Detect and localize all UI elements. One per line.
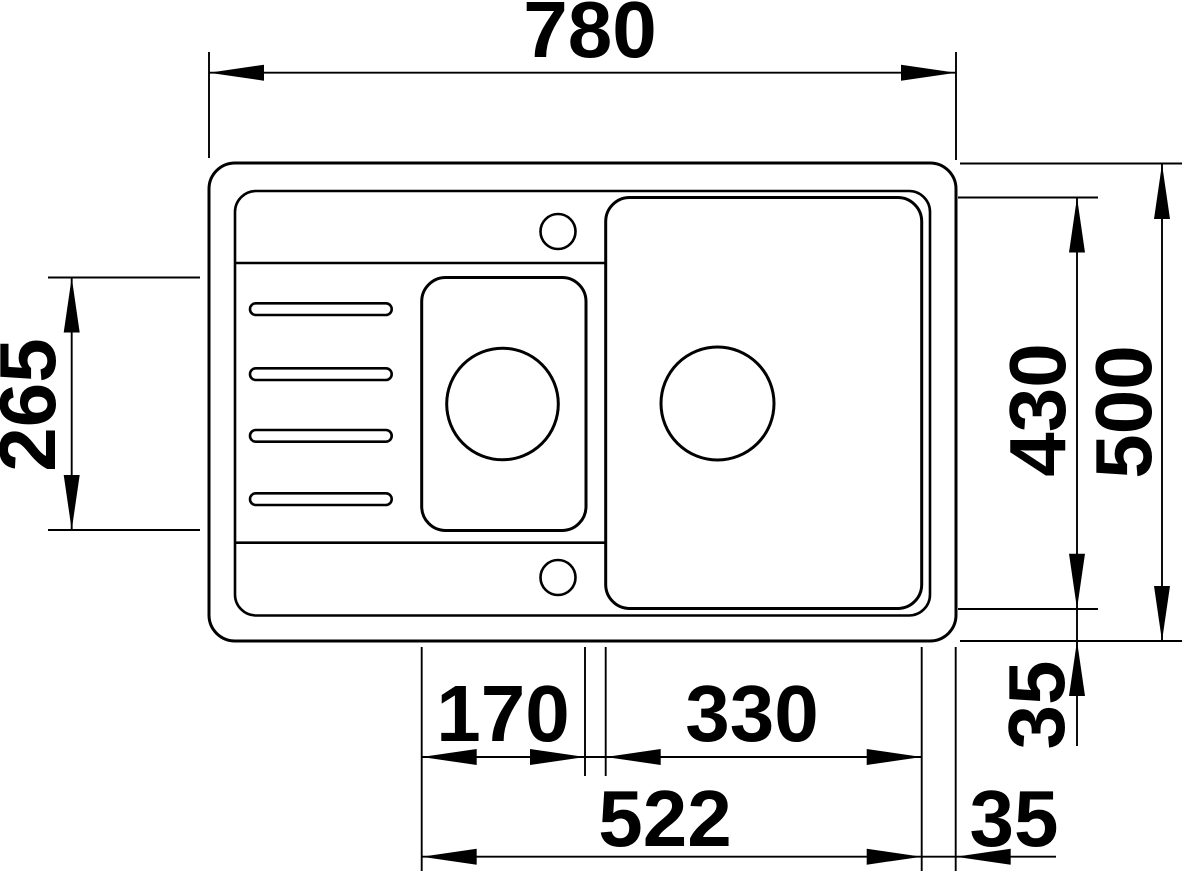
technical-drawing-canvas: 780 265 430 35 500 170 [0, 0, 1182, 877]
arrowhead-522-right [867, 849, 922, 865]
arrowhead-430-top [1069, 198, 1085, 253]
main-bowl-drain-circle [661, 347, 774, 460]
dimension-label-main-bowl-width: 330 [685, 669, 818, 758]
dimension-label-bowl-bottom-edge-gap: 35 [992, 661, 1081, 750]
dimension-label-small-bowl-width: 170 [436, 669, 569, 758]
arrowhead-330-right [867, 749, 922, 765]
sink-dimension-drawing: 780 265 430 35 500 170 [0, 0, 1182, 877]
sink-inner-rim [235, 191, 930, 616]
arrowhead-780-left [209, 65, 264, 81]
tap-hole-top [541, 214, 576, 249]
arrowhead-780-right [901, 65, 956, 81]
arrowhead-500-bottom [1154, 586, 1170, 641]
drainboard-groove-2 [250, 368, 392, 380]
dimension-label-bowl-right-edge-gap: 35 [970, 774, 1059, 863]
arrowhead-430-bottom [1069, 554, 1085, 609]
sink-outer-edge [209, 163, 956, 641]
drainboard-groove-4 [250, 493, 392, 505]
drainboard-groove-1 [250, 303, 392, 315]
tap-hole-bottom [541, 560, 576, 595]
dimension-label-bowls-span: 522 [598, 774, 731, 863]
drainboard-groove-3 [250, 430, 392, 442]
arrowhead-265-bottom [64, 475, 80, 530]
arrowhead-500-top [1154, 164, 1170, 219]
dimension-label-bowl-zone-depth: 430 [993, 343, 1082, 476]
dimension-label-overall-width: 780 [523, 0, 656, 74]
arrowhead-265-top [64, 278, 80, 333]
dimension-label-overall-depth: 500 [1079, 345, 1168, 478]
dimension-label-small-bowl-depth: 265 [0, 338, 72, 471]
main-bowl [606, 198, 922, 609]
small-bowl-drain-circle [447, 348, 559, 460]
arrowhead-330-left [606, 749, 661, 765]
arrowhead-522-left [422, 849, 477, 865]
